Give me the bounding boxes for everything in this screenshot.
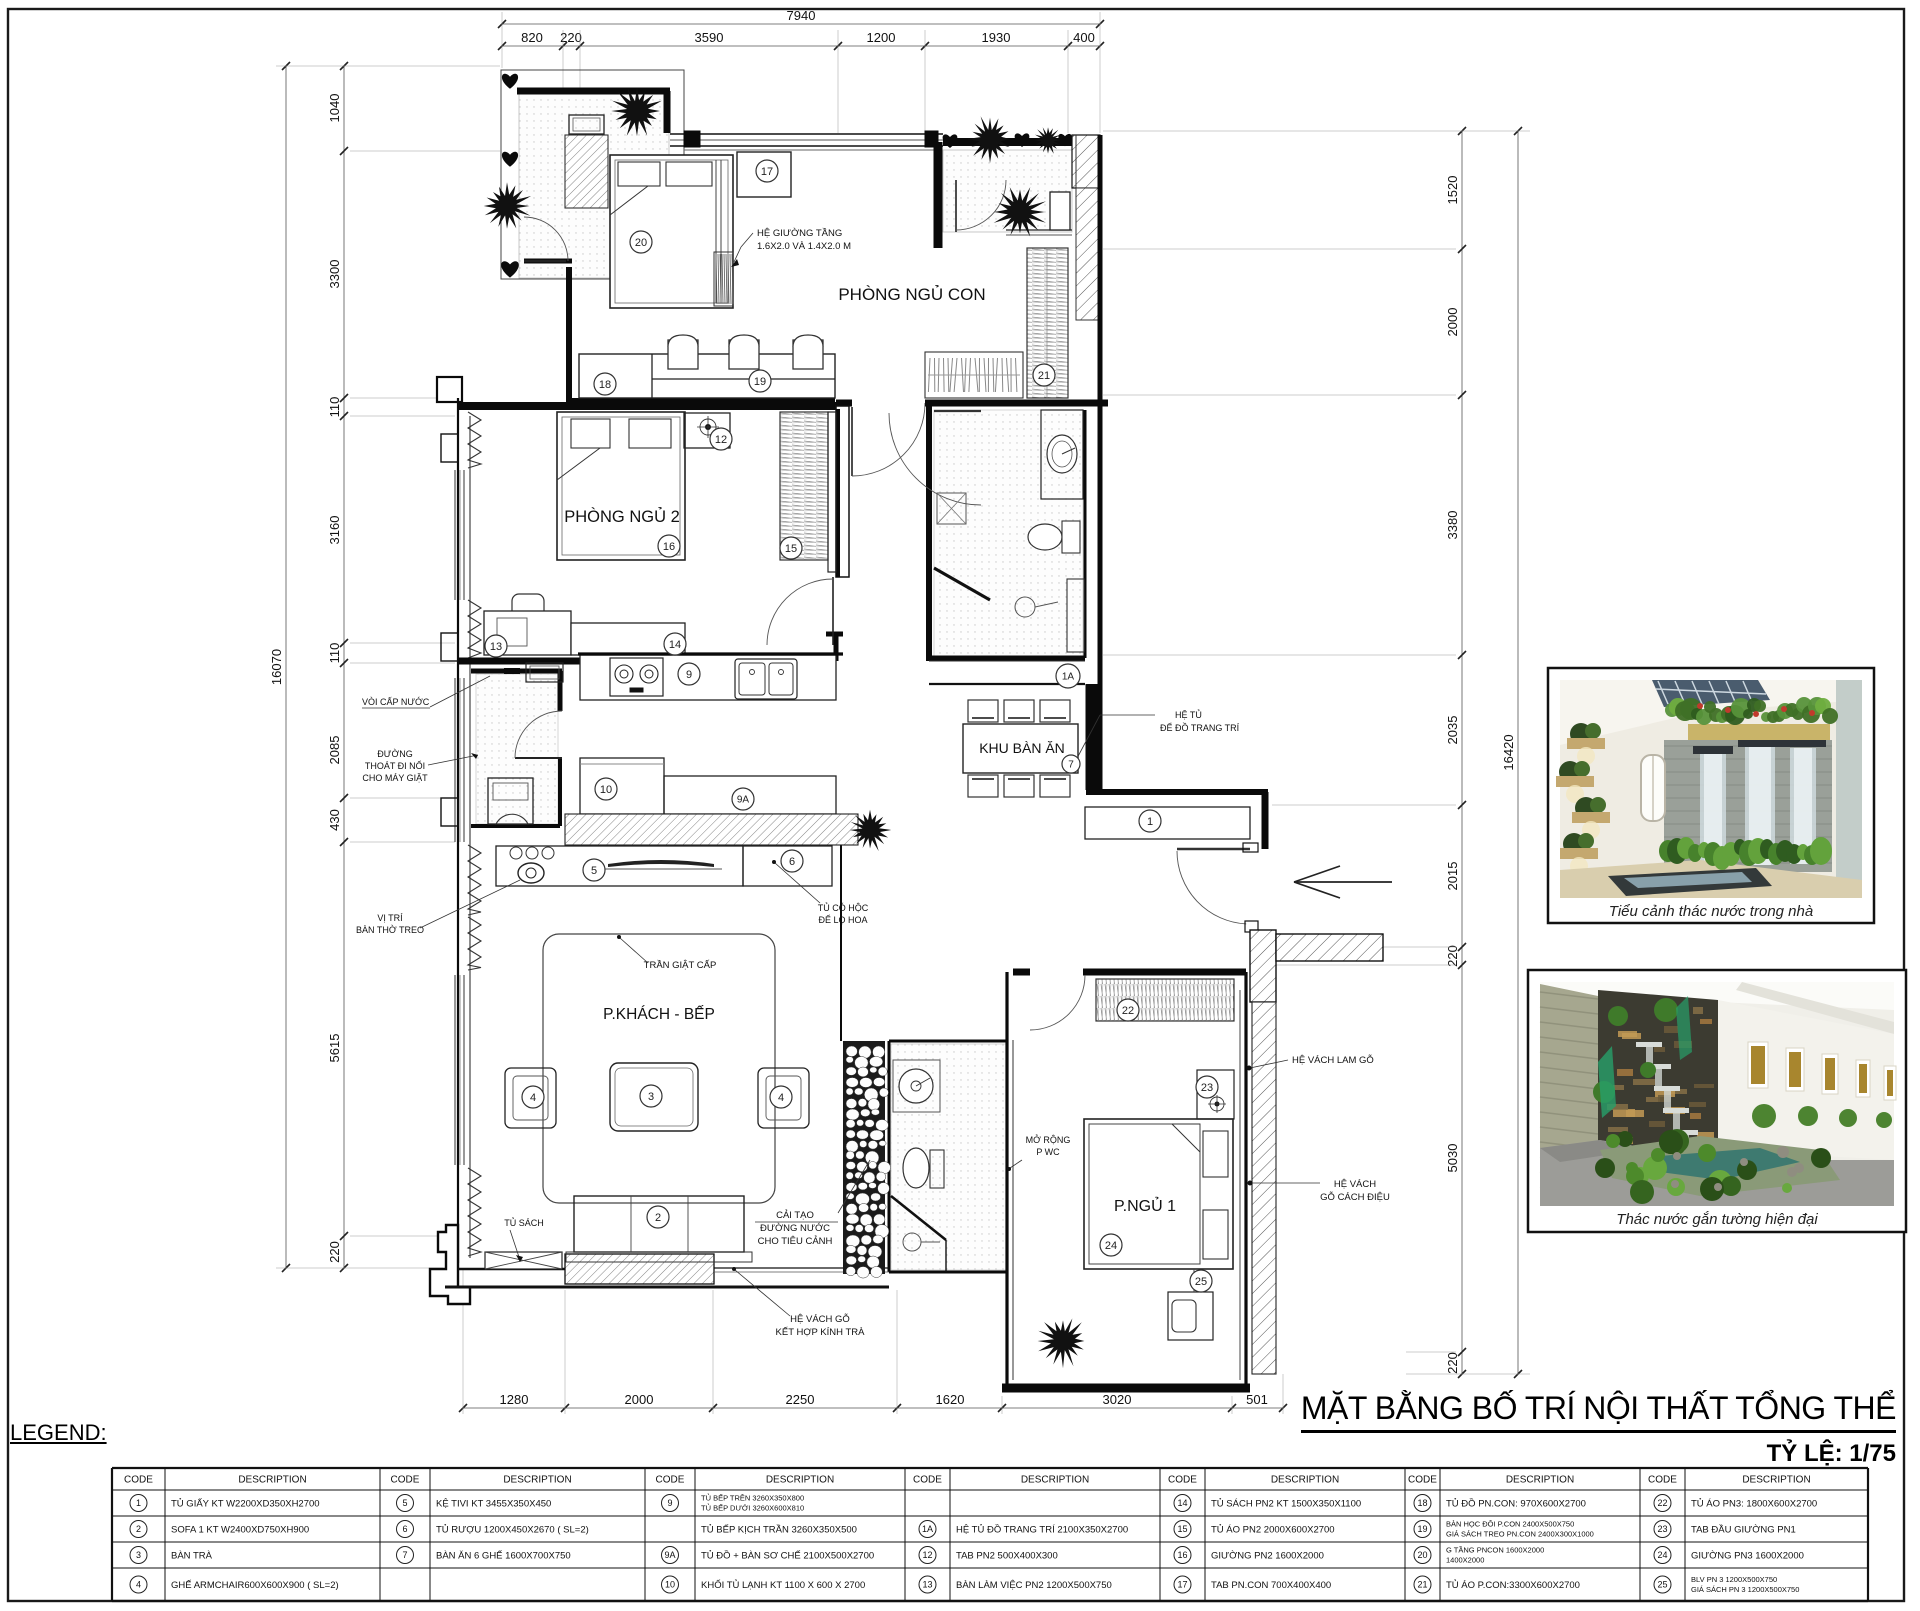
svg-text:19: 19 [1417,1524,1427,1534]
svg-text:TỦ SÁCH PN2 KT 1500X350X1100: TỦ SÁCH PN2 KT 1500X350X1100 [1211,1498,1361,1510]
svg-text:TAB PN2 500X400X300: TAB PN2 500X400X300 [956,1551,1058,1562]
svg-text:TỦ ĐỒ PN.CON: 970X600X2700: TỦ ĐỒ PN.CON: 970X600X2700 [1446,1498,1586,1510]
svg-text:9: 9 [667,1498,672,1508]
svg-text:CODE: CODE [656,1475,685,1486]
svg-text:23: 23 [1657,1524,1667,1534]
svg-text:BÀN HỌC ĐÔI P.CON 2400X500X75: BÀN HỌC ĐÔI P.CON 2400X500X750 [1446,1520,1574,1529]
svg-text:DESCRIPTION: DESCRIPTION [503,1475,571,1486]
svg-text:DESCRIPTION: DESCRIPTION [1742,1475,1810,1486]
svg-text:TỦ ÁO P.CON:3300X600X2700: TỦ ÁO P.CON:3300X600X2700 [1446,1579,1580,1591]
svg-text:BÀN TRÀ: BÀN TRÀ [171,1551,213,1562]
svg-text:CODE: CODE [1408,1475,1437,1486]
svg-text:12: 12 [922,1550,932,1560]
svg-text:17: 17 [1177,1580,1187,1590]
svg-text:GIÁ SÁCH TREO PN.CON 2400X300: GIÁ SÁCH TREO PN.CON 2400X300X1000 [1446,1530,1594,1539]
svg-text:4: 4 [136,1580,141,1590]
svg-text:2: 2 [136,1524,141,1534]
svg-text:18: 18 [1417,1498,1427,1508]
svg-text:CODE: CODE [913,1475,942,1486]
svg-text:15: 15 [1177,1524,1187,1534]
svg-text:DESCRIPTION: DESCRIPTION [1506,1475,1574,1486]
svg-text:DESCRIPTION: DESCRIPTION [1021,1475,1089,1486]
svg-text:20: 20 [1417,1550,1427,1560]
svg-text:14: 14 [1177,1498,1187,1508]
svg-text:G TẦNG PNCON 1600X2000: G TẦNG PNCON 1600X2000 [1446,1545,1544,1555]
svg-text:3: 3 [136,1550,141,1560]
svg-text:16: 16 [1177,1550,1187,1560]
svg-text:7: 7 [402,1550,407,1560]
svg-text:GIÁ SÁCH PN 3 1200X500X750: GIÁ SÁCH PN 3 1200X500X750 [1691,1585,1799,1594]
svg-text:TỦ RƯỢU 1200X450X2670 ( SL=2): TỦ RƯỢU 1200X450X2670 ( SL=2) [436,1524,589,1536]
svg-text:TỦ ÁO PN3: 1800X600X2700: TỦ ÁO PN3: 1800X600X2700 [1691,1498,1817,1510]
svg-text:TỦ ÁO PN2 2000X600X2700: TỦ ÁO PN2 2000X600X2700 [1211,1524,1335,1536]
svg-text:TỦ BẾP KỊCH TRẦN 3260X350X500: TỦ BẾP KỊCH TRẦN 3260X350X500 [701,1524,857,1536]
svg-text:TỦ ĐỒ + BÀN SƠ CHẾ 2100X500X27: TỦ ĐỒ + BÀN SƠ CHẾ 2100X500X2700 [701,1550,874,1562]
svg-text:SOFA 1 KT W2400XD750XH900: SOFA 1 KT W2400XD750XH900 [171,1525,309,1536]
svg-text:DESCRIPTION: DESCRIPTION [766,1475,834,1486]
svg-text:KỆ TIVI KT 3455X350X450: KỆ TIVI KT 3455X350X450 [436,1499,551,1510]
svg-text:1A: 1A [922,1524,933,1534]
svg-text:24: 24 [1657,1550,1667,1560]
svg-text:1: 1 [136,1498,141,1508]
svg-text:25: 25 [1657,1580,1667,1590]
svg-text:TAB PN.CON 700X400X400: TAB PN.CON 700X400X400 [1211,1580,1331,1591]
svg-text:TỦ GIẤY KT W2200XD350XH2700: TỦ GIẤY KT W2200XD350XH2700 [171,1498,320,1510]
svg-text:1400X2000: 1400X2000 [1446,1556,1484,1565]
svg-text:22: 22 [1657,1498,1667,1508]
svg-text:DESCRIPTION: DESCRIPTION [1271,1475,1339,1486]
svg-text:6: 6 [402,1524,407,1534]
svg-text:TAB ĐẦU GIƯỜNG PN1: TAB ĐẦU GIƯỜNG PN1 [1691,1525,1796,1536]
svg-text:13: 13 [922,1580,932,1590]
svg-text:9A: 9A [664,1550,675,1560]
svg-text:GIƯỜNG PN3 1600X2000: GIƯỜNG PN3 1600X2000 [1691,1551,1804,1562]
svg-text:KHỐI TỦ LẠNH KT 1100 X 600 X: KHỐI TỦ LẠNH KT 1100 X 600 X 2700 [701,1579,865,1591]
svg-text:CODE: CODE [1168,1475,1197,1486]
svg-text:10: 10 [665,1580,675,1590]
svg-text:GIƯỜNG PN2 1600X2000: GIƯỜNG PN2 1600X2000 [1211,1551,1324,1562]
svg-text:GHẾ ARMCHAIR600X600X900 ( SL=2: GHẾ ARMCHAIR600X600X900 ( SL=2) [171,1580,339,1591]
svg-text:BLV PN 3 1200X500X750: BLV PN 3 1200X500X750 [1691,1575,1777,1584]
svg-text:TỦ BẾP DƯỚI 3260X600X810: TỦ BẾP DƯỚI 3260X600X810 [701,1503,804,1513]
svg-text:5: 5 [402,1498,407,1508]
svg-text:CODE: CODE [124,1475,153,1486]
svg-text:BÀN LÀM VIỆC PN2 1200X500X750: BÀN LÀM VIỆC PN2 1200X500X750 [956,1580,1112,1591]
svg-text:CODE: CODE [1648,1475,1677,1486]
svg-text:DESCRIPTION: DESCRIPTION [238,1475,306,1486]
svg-text:CODE: CODE [391,1475,420,1486]
svg-text:TỦ BẾP TRÊN 3260X350X800: TỦ BẾP TRÊN 3260X350X800 [701,1493,804,1503]
svg-text:HỆ TỦ ĐỒ TRANG TRÍ 2100X350X27: HỆ TỦ ĐỒ TRANG TRÍ 2100X350X2700 [956,1524,1128,1536]
svg-text:21: 21 [1417,1580,1427,1590]
svg-text:BÀN ĂN 6 GHẾ 1600X700X750: BÀN ĂN 6 GHẾ 1600X700X750 [436,1551,571,1562]
